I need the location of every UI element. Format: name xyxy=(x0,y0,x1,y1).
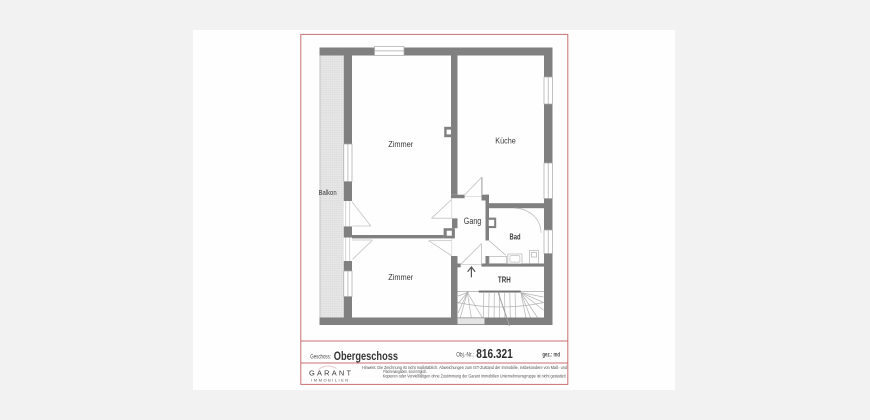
svg-text:Zimmer: Zimmer xyxy=(388,139,413,149)
svg-text:Gang: Gang xyxy=(464,216,482,226)
svg-text:816.321: 816.321 xyxy=(476,346,513,361)
svg-text:TRH: TRH xyxy=(498,275,511,285)
svg-text:Obergeschoss: Obergeschoss xyxy=(334,350,398,363)
svg-text:Kopieren oder Vervielfältigen: Kopieren oder Vervielfältigen ohne Zusti… xyxy=(383,374,566,379)
svg-text:Zimmer: Zimmer xyxy=(388,272,413,282)
svg-text:gez.: md: gez.: md xyxy=(542,353,560,359)
svg-text:Obj.-Nr.:: Obj.-Nr.: xyxy=(456,353,474,359)
svg-text:Balkon: Balkon xyxy=(319,188,337,197)
svg-text:Bad: Bad xyxy=(510,233,521,242)
svg-text:Geschoss:: Geschoss: xyxy=(310,354,331,361)
svg-text:IMMOBILIEN: IMMOBILIEN xyxy=(311,377,348,382)
svg-text:Küche: Küche xyxy=(495,136,516,146)
